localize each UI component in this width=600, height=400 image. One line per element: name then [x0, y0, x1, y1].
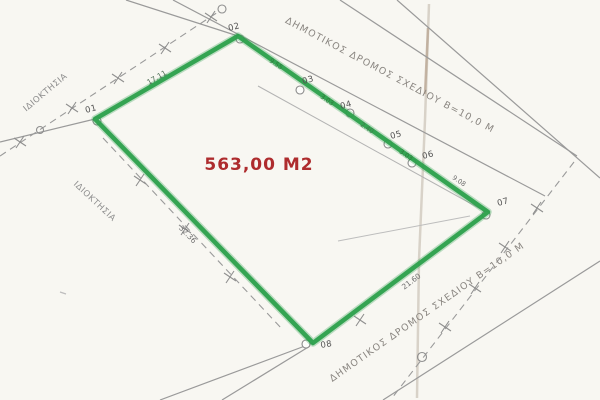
- parcel-point-circle-icon: [296, 86, 304, 94]
- point-label-08: 08: [320, 339, 333, 351]
- parcel-area-label: 563,00 M2: [204, 155, 313, 175]
- plan-canvas: 563,00 M2 ΔΗΜΟΤΙΚΟΣ ΔΡΟΜΟΣ ΣΧΕΔΙΟΥ Β=10,…: [0, 0, 600, 400]
- survey-plan-scan: 563,00 M2 ΔΗΜΟΤΙΚΟΣ ΔΡΟΜΟΣ ΣΧΕΔΙΟΥ Β=10,…: [0, 0, 600, 400]
